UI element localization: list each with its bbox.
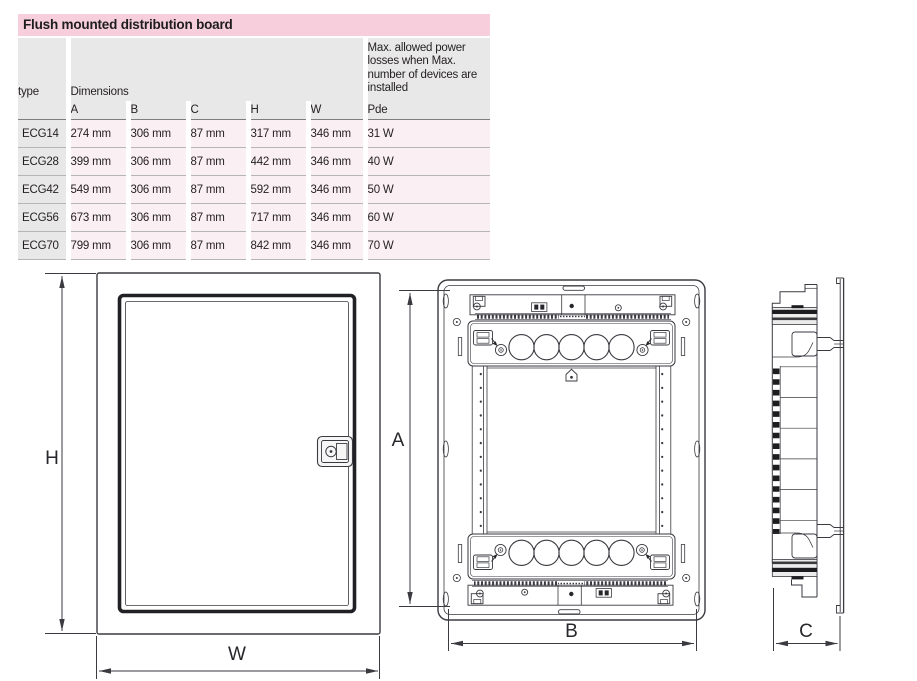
front-view-without-door: A B [392, 280, 705, 651]
height-dim-label: H [45, 448, 59, 469]
width-dim-label: W [228, 644, 246, 665]
mounting-arrow-icon [566, 369, 577, 381]
knockout-holes [509, 335, 634, 360]
door-latch [318, 437, 353, 467]
shelf-lines [780, 367, 817, 521]
inner-width-dim-label: B [565, 621, 578, 642]
dimension-a [399, 291, 450, 607]
knockout-panel-assembly [443, 286, 700, 366]
side-view: C [772, 278, 843, 651]
din-rails [472, 366, 671, 534]
inner-height-dim-label: A [392, 430, 405, 451]
depth-dim-label: C [799, 621, 813, 642]
page: Flush mounted distribution board type Di… [0, 0, 917, 681]
front-view-with-door: H W [45, 273, 380, 679]
technical-drawings: H W [0, 0, 917, 681]
